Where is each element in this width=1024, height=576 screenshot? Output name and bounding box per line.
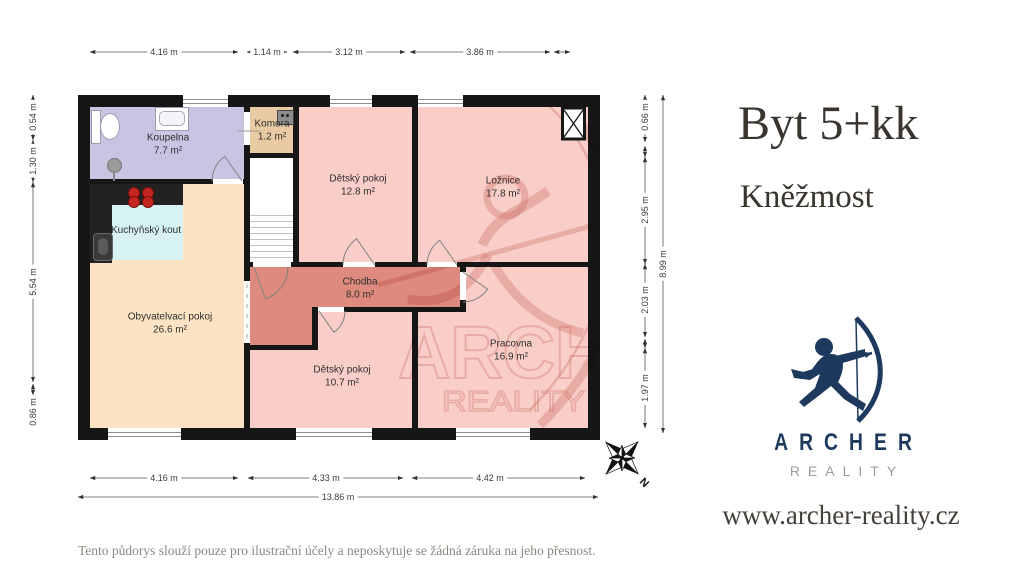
dim-label-bottom-2: 4.33 m: [309, 473, 343, 483]
room-label-obyvatelvaci-pokoj: Obyvatelvací pokoj26.6 m²: [128, 312, 213, 337]
room-label-pracovna: Pracovna16.9 m²: [490, 339, 532, 364]
dim-label-left-2: 1.30 m: [28, 144, 38, 178]
room-label-chodba: Chodba8.0 m²: [342, 277, 377, 302]
dim-label-top-4: 3.86 m: [463, 47, 497, 57]
compass-icon: [594, 430, 654, 490]
dim-label-right-2: 2.95 m: [640, 193, 650, 227]
dim-label-top-1: 4.16 m: [147, 47, 181, 57]
dim-label-left-3: 5.54 m: [28, 265, 38, 299]
room-label-komora: Komora1.2 m²: [254, 119, 289, 144]
dim-label-right-1: 0.66 m: [640, 100, 650, 134]
dim-label-bottom-3: 4.42 m: [473, 473, 507, 483]
dim-label-top-3: 3.12 m: [332, 47, 366, 57]
dim-label-bottom-1: 4.16 m: [147, 473, 181, 483]
dim-label-right-4: 1.97 m: [640, 371, 650, 405]
room-label-kuchynsky-kout: Kuchyňský kout: [111, 225, 181, 238]
dim-label-right-3: 2.03 m: [640, 283, 650, 317]
room-label-detsky-pokoj-1: Dětský pokoj12.8 m²: [329, 174, 386, 199]
dimension-lines: [0, 0, 1024, 576]
archer-logo-icon: [786, 314, 898, 428]
dim-label-left-1: 0.54 m: [28, 100, 38, 134]
room-label-loznice: Ložnice17.8 m²: [486, 176, 520, 201]
room-label-detsky-pokoj-2: Dětský pokoj10.7 m²: [313, 365, 370, 390]
dim-label-bottom-total: 13.86 m: [319, 492, 358, 502]
dim-label-right-total: 8.99 m: [658, 247, 668, 281]
dim-label-left-4: 0.86 m: [28, 395, 38, 429]
room-label-koupelna: Koupelna7.7 m²: [147, 133, 189, 158]
dim-label-top-2: 1.14 m: [250, 47, 284, 57]
floor-plan-page: ARCHER REALITY: [0, 0, 1024, 576]
